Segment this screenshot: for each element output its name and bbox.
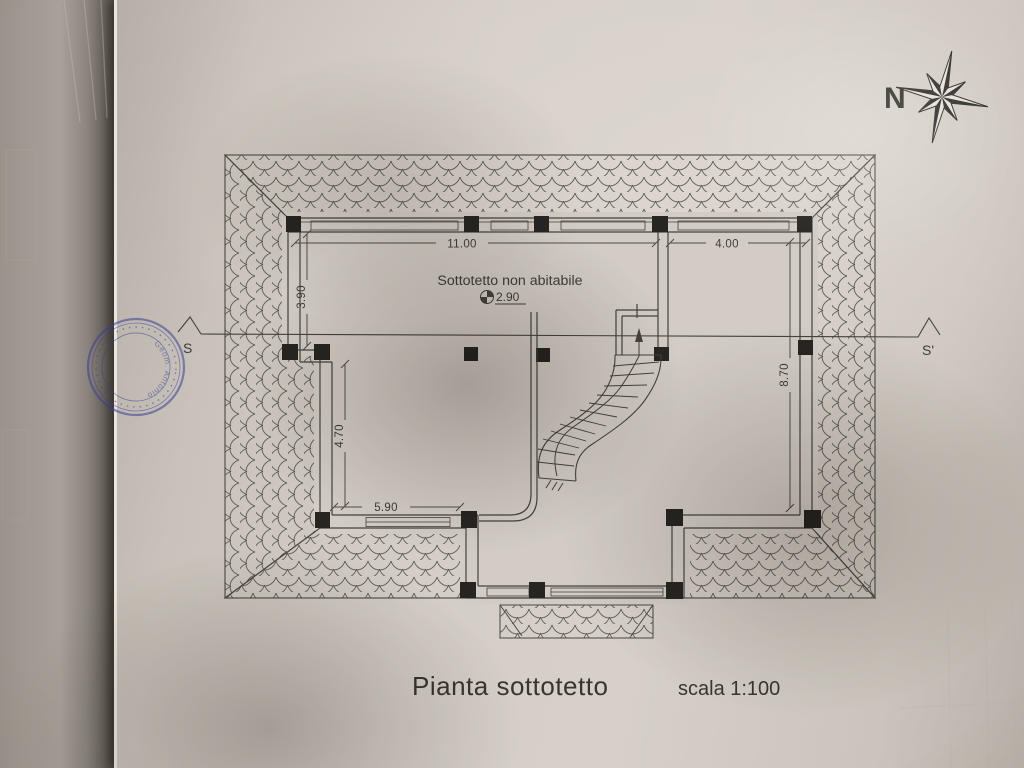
section-start-label: S bbox=[183, 340, 192, 356]
dim-bottom-left: 5.90 bbox=[374, 502, 398, 514]
floor-plan-drawing: Pianta bbox=[0, 0, 1024, 768]
drawing-title: Pianta sottotetto bbox=[412, 671, 608, 701]
drawing-scale: scala 1:100 bbox=[678, 678, 780, 700]
photo-of-drawing: Pianta bbox=[0, 0, 1024, 768]
dim-top-right: 4.00 bbox=[715, 239, 739, 251]
porch-roof bbox=[500, 605, 653, 638]
dim-top-main: 11.00 bbox=[447, 239, 476, 251]
compass-north-label: N bbox=[884, 82, 906, 115]
approval-stamp: Geom. Antonio bbox=[82, 313, 190, 421]
dim-left-lower: 4.70 bbox=[334, 424, 346, 448]
level-marker-icon bbox=[481, 291, 494, 304]
room-label: Sottotetto non abitabile bbox=[437, 273, 582, 289]
dim-left-upper: 3.90 bbox=[296, 285, 308, 309]
compass-rose: N bbox=[884, 41, 998, 152]
level-value: 2.90 bbox=[496, 290, 520, 304]
section-end-label: S' bbox=[922, 342, 934, 358]
dim-right-side: 8.70 bbox=[779, 363, 791, 387]
